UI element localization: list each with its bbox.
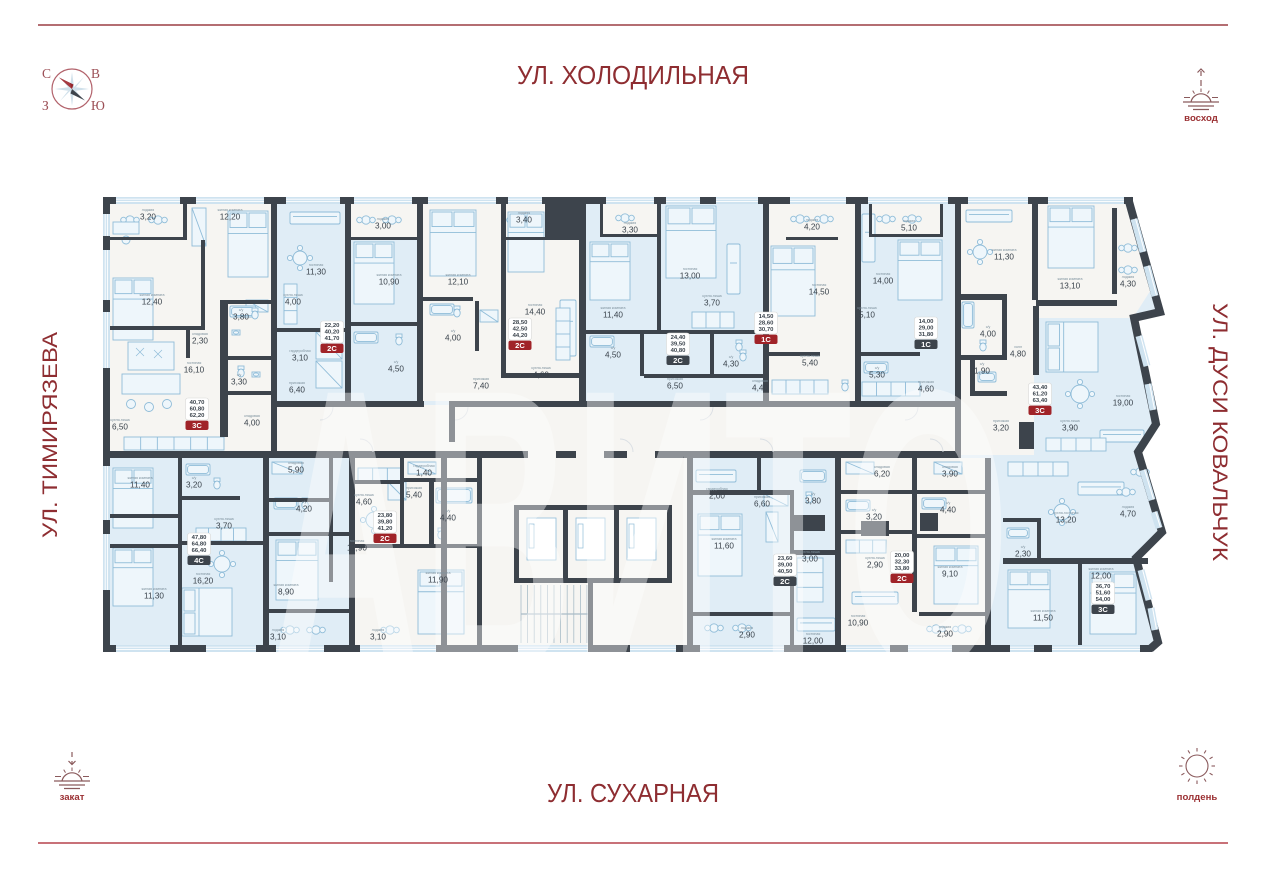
svg-text:3С: 3С (1098, 605, 1108, 614)
svg-text:4,60: 4,60 (356, 498, 372, 507)
svg-text:жилая комната: жилая комната (425, 571, 450, 575)
svg-text:5,10: 5,10 (859, 311, 875, 320)
svg-text:5,10: 5,10 (901, 224, 917, 233)
svg-text:19,00: 19,00 (1113, 399, 1134, 408)
svg-text:4,40: 4,40 (940, 506, 956, 515)
svg-text:13,00: 13,00 (680, 272, 701, 281)
svg-text:прихожая: прихожая (754, 495, 770, 499)
svg-text:11,30: 11,30 (306, 268, 326, 277)
svg-text:прихожая: прихожая (406, 486, 422, 490)
svg-text:1,90: 1,90 (974, 367, 990, 376)
svg-text:кухня-ниша: кухня-ниша (1060, 419, 1079, 423)
svg-text:4,40: 4,40 (752, 384, 768, 393)
svg-text:УЛ. СУХАРНАЯ: УЛ. СУХАРНАЯ (547, 778, 719, 808)
svg-text:4,00: 4,00 (445, 334, 461, 343)
svg-text:3,00: 3,00 (802, 555, 818, 564)
svg-text:16,20: 16,20 (193, 577, 214, 586)
svg-text:полдень: полдень (1177, 792, 1218, 803)
svg-text:9,10: 9,10 (942, 570, 958, 579)
svg-text:восход: восход (1184, 113, 1218, 124)
svg-text:2,00: 2,00 (709, 492, 725, 501)
svg-text:прихожая: прихожая (667, 377, 683, 381)
svg-text:1,40: 1,40 (416, 469, 432, 478)
svg-text:кладовая: кладовая (942, 465, 958, 469)
svg-text:40,50: 40,50 (778, 569, 793, 575)
svg-text:4,60: 4,60 (533, 371, 549, 380)
svg-text:с/у: с/у (729, 355, 734, 359)
svg-text:лоджия: лоджия (377, 217, 390, 221)
svg-text:жилая комната: жилая комната (1088, 567, 1113, 571)
svg-text:4,50: 4,50 (388, 365, 404, 374)
svg-text:3,70: 3,70 (704, 299, 720, 308)
svg-text:3,10: 3,10 (270, 633, 286, 642)
svg-text:кладовая: кладовая (288, 461, 304, 465)
svg-text:4,30: 4,30 (1120, 280, 1136, 289)
svg-text:лоджия: лоджия (272, 628, 285, 632)
svg-text:16,10: 16,10 (184, 366, 205, 375)
svg-text:жилая комната: жилая комната (937, 565, 962, 569)
svg-text:УЛ. ХОЛОДИЛЬНАЯ: УЛ. ХОЛОДИЛЬНАЯ (517, 60, 749, 90)
svg-text:с/у: с/у (237, 373, 242, 377)
svg-text:кухня-ниша: кухня-ниша (857, 306, 876, 310)
svg-text:2С: 2С (780, 577, 790, 586)
svg-text:гостиная: гостиная (528, 303, 543, 307)
svg-text:29,00: 29,00 (919, 325, 934, 331)
svg-text:2,90: 2,90 (867, 561, 883, 570)
svg-text:61,20: 61,20 (1033, 391, 1048, 397)
svg-text:12,00: 12,00 (1091, 572, 1112, 581)
svg-text:2С: 2С (515, 341, 525, 350)
svg-text:прихожая: прихожая (993, 419, 1009, 423)
svg-text:гостиная: гостиная (350, 539, 365, 543)
svg-text:кухня-ниша: кухня-ниша (214, 517, 233, 521)
svg-text:кладовая: кладовая (192, 332, 208, 336)
svg-text:6,20: 6,20 (874, 470, 890, 479)
svg-text:жилая комната: жилая комната (273, 583, 298, 587)
svg-text:жилая комната: жилая комната (1057, 277, 1082, 281)
svg-text:с/у: с/у (986, 325, 991, 329)
svg-text:УЛ. ТИМИРЯЗЕВА: УЛ. ТИМИРЯЗЕВА (39, 332, 62, 538)
svg-text:с/у: с/у (811, 492, 816, 496)
svg-text:закат: закат (60, 792, 85, 803)
svg-text:3,20: 3,20 (993, 424, 1009, 433)
svg-text:12,00: 12,00 (803, 637, 824, 646)
svg-text:1С: 1С (921, 340, 931, 349)
svg-text:3,10: 3,10 (370, 633, 386, 642)
svg-text:3,40: 3,40 (516, 216, 532, 225)
svg-text:кухня-гостиная: кухня-гостиная (1054, 511, 1079, 515)
svg-text:жилая комната: жилая комната (711, 537, 736, 541)
svg-text:лоджия: лоджия (624, 221, 637, 225)
svg-text:11,40: 11,40 (603, 311, 623, 320)
svg-text:23,60: 23,60 (778, 556, 793, 562)
svg-text:лоджия: лоджия (903, 219, 916, 223)
svg-text:66,40: 66,40 (192, 548, 207, 554)
svg-text:4,20: 4,20 (804, 223, 820, 232)
svg-text:лоджия: лоджия (806, 218, 819, 222)
svg-text:13,20: 13,20 (1056, 516, 1077, 525)
svg-text:5,40: 5,40 (802, 359, 818, 368)
svg-text:с/у: с/у (872, 508, 877, 512)
svg-text:жилая комната: жилая комната (217, 208, 242, 212)
svg-text:39,80: 39,80 (378, 519, 393, 525)
svg-text:5,40: 5,40 (406, 491, 422, 500)
svg-text:гостиная: гостиная (187, 361, 202, 365)
svg-text:44,20: 44,20 (513, 333, 528, 339)
svg-text:холл: холл (1014, 345, 1022, 349)
svg-text:2,30: 2,30 (1015, 550, 1031, 559)
svg-text:с/у: с/у (451, 329, 456, 333)
svg-text:24,40: 24,40 (671, 335, 686, 341)
svg-text:жилая комната: жилая комната (1030, 609, 1055, 613)
svg-text:32,30: 32,30 (895, 559, 910, 565)
svg-text:39,50: 39,50 (671, 341, 686, 347)
svg-text:гардеробная: гардеробная (413, 464, 434, 468)
svg-text:12,20: 12,20 (220, 213, 241, 222)
svg-text:43,40: 43,40 (1033, 385, 1048, 391)
svg-text:жилая комната: жилая комната (127, 476, 152, 480)
svg-text:3,20: 3,20 (140, 213, 156, 222)
svg-text:63,40: 63,40 (1033, 398, 1048, 404)
svg-text:гостиная: гостиная (851, 614, 866, 618)
svg-text:12,40: 12,40 (142, 298, 163, 307)
svg-text:жилая комната: жилая комната (600, 306, 625, 310)
svg-text:лоджия: лоджия (741, 626, 754, 630)
svg-text:28,60: 28,60 (759, 320, 774, 326)
svg-text:с/у: с/у (875, 366, 880, 370)
svg-text:14,50: 14,50 (809, 288, 830, 297)
svg-text:4С: 4С (194, 556, 204, 565)
svg-text:3,90: 3,90 (1062, 424, 1078, 433)
svg-text:12,10: 12,10 (448, 278, 469, 287)
svg-text:22,20: 22,20 (325, 323, 340, 329)
svg-text:2,30: 2,30 (192, 337, 208, 346)
svg-text:гостиная: гостиная (806, 632, 821, 636)
svg-text:4,80: 4,80 (1010, 350, 1026, 359)
svg-text:гостиная: гостиная (812, 283, 827, 287)
svg-text:2С: 2С (673, 356, 683, 365)
svg-text:11,30: 11,30 (994, 253, 1014, 262)
svg-text:14,50: 14,50 (759, 314, 774, 320)
svg-text:прихожая: прихожая (918, 380, 934, 384)
svg-text:2С: 2С (327, 344, 337, 353)
svg-text:10,90: 10,90 (848, 619, 869, 628)
svg-text:кладовая: кладовая (752, 379, 768, 383)
svg-text:6,60: 6,60 (754, 500, 770, 509)
svg-text:прихожая: прихожая (289, 381, 305, 385)
svg-text:жилая комната: жилая комната (139, 293, 164, 297)
svg-text:42,50: 42,50 (513, 326, 528, 332)
svg-text:40,70: 40,70 (190, 400, 205, 406)
svg-text:с/у: с/у (611, 346, 616, 350)
svg-text:41,70: 41,70 (325, 336, 340, 342)
svg-text:11,40: 11,40 (130, 481, 150, 490)
svg-text:жилая комната: жилая комната (376, 273, 401, 277)
svg-text:гостиная: гостиная (196, 572, 211, 576)
svg-text:4,00: 4,00 (980, 330, 996, 339)
svg-text:4,20: 4,20 (296, 505, 312, 514)
svg-text:3,90: 3,90 (942, 470, 958, 479)
svg-text:С: С (42, 66, 51, 81)
svg-text:30,70: 30,70 (759, 327, 774, 333)
svg-text:4,60: 4,60 (918, 385, 934, 394)
svg-text:40,80: 40,80 (671, 348, 686, 354)
svg-text:3С: 3С (192, 421, 202, 430)
svg-text:54,00: 54,00 (1096, 597, 1111, 603)
svg-text:3,00: 3,00 (375, 222, 391, 231)
svg-text:кухня-ниша: кухня-ниша (283, 293, 302, 297)
svg-text:28,50: 28,50 (513, 320, 528, 326)
svg-text:З: З (42, 98, 49, 113)
svg-text:прихожая: прихожая (473, 377, 489, 381)
svg-text:51,60: 51,60 (1096, 590, 1111, 596)
svg-text:4,00: 4,00 (244, 419, 260, 428)
svg-text:лоджия: лоджия (142, 208, 155, 212)
svg-text:с/у: с/у (239, 308, 244, 312)
svg-text:10,90: 10,90 (379, 278, 400, 287)
svg-text:47,80: 47,80 (192, 535, 207, 541)
svg-text:гардеробная: гардеробная (289, 349, 310, 353)
svg-text:лоджия: лоджия (1122, 275, 1135, 279)
svg-text:гардеробная: гардеробная (706, 487, 727, 491)
svg-text:3,30: 3,30 (231, 378, 247, 387)
svg-text:с/у: с/у (394, 360, 399, 364)
svg-text:кухня-ниша: кухня-ниша (800, 354, 819, 358)
svg-text:с/у: с/у (302, 500, 307, 504)
svg-text:3,70: 3,70 (216, 522, 232, 531)
svg-text:2С: 2С (380, 534, 390, 543)
svg-text:11,90: 11,90 (347, 544, 367, 553)
svg-text:лоджия: лоджия (518, 211, 531, 215)
svg-text:11,50: 11,50 (1033, 614, 1053, 623)
svg-text:14,00: 14,00 (919, 319, 934, 325)
svg-text:жилая комната: жилая комната (991, 248, 1016, 252)
svg-text:20,00: 20,00 (895, 553, 910, 559)
svg-text:36,70: 36,70 (1096, 584, 1111, 590)
svg-text:4,30: 4,30 (723, 360, 739, 369)
svg-text:11,60: 11,60 (714, 542, 734, 551)
svg-text:6,50: 6,50 (112, 423, 128, 432)
svg-text:с/у: с/у (980, 362, 985, 366)
svg-text:лоджия: лоджия (939, 625, 952, 629)
svg-text:41,20: 41,20 (378, 526, 393, 532)
svg-text:6,40: 6,40 (289, 386, 305, 395)
svg-text:3,80: 3,80 (805, 497, 821, 506)
svg-text:3С: 3С (1035, 406, 1045, 415)
svg-text:гостиная: гостиная (683, 267, 698, 271)
svg-text:4,70: 4,70 (1120, 510, 1136, 519)
svg-text:с/у: с/у (1021, 545, 1026, 549)
svg-text:УЛ. ДУСИ КОВАЛЬЧУК: УЛ. ДУСИ КОВАЛЬЧУК (1208, 303, 1231, 562)
svg-text:40,20: 40,20 (325, 329, 340, 335)
svg-text:2,90: 2,90 (937, 630, 953, 639)
svg-text:кухня-ниша: кухня-ниша (110, 418, 129, 422)
svg-text:14,40: 14,40 (525, 308, 546, 317)
svg-text:3,20: 3,20 (866, 513, 882, 522)
svg-text:2С: 2С (897, 574, 907, 583)
svg-text:с/у: с/у (446, 509, 451, 513)
svg-text:кухня-ниша: кухня-ниша (865, 556, 884, 560)
svg-text:6,50: 6,50 (667, 382, 683, 391)
svg-text:с/у: с/у (192, 476, 197, 480)
svg-text:гостиная: гостиная (309, 263, 324, 267)
svg-text:3,80: 3,80 (233, 313, 249, 322)
svg-text:1С: 1С (761, 335, 771, 344)
svg-text:кухня-ниша: кухня-ниша (531, 366, 550, 370)
svg-text:лоджия: лоджия (1122, 505, 1135, 509)
svg-text:3,30: 3,30 (622, 226, 638, 235)
svg-text:с/у: с/у (946, 501, 951, 505)
svg-text:3,10: 3,10 (292, 354, 308, 363)
svg-text:5,30: 5,30 (869, 371, 885, 380)
svg-text:Ю: Ю (91, 98, 105, 113)
svg-text:11,30: 11,30 (144, 592, 164, 601)
svg-text:4,40: 4,40 (440, 514, 456, 523)
svg-text:кухня-ниша: кухня-ниша (702, 294, 721, 298)
svg-text:кладовая: кладовая (874, 465, 890, 469)
svg-text:лоджия: лоджия (372, 628, 385, 632)
svg-text:14,00: 14,00 (873, 277, 894, 286)
svg-text:8,90: 8,90 (278, 588, 294, 597)
svg-text:гостиная: гостиная (1116, 394, 1131, 398)
svg-text:11,90: 11,90 (428, 576, 448, 585)
svg-text:4,00: 4,00 (285, 298, 301, 307)
svg-text:13,10: 13,10 (1060, 282, 1081, 291)
svg-text:кухня-ниша: кухня-ниша (354, 493, 373, 497)
svg-text:гостиная: гостиная (876, 272, 891, 276)
svg-text:кухня-ниша: кухня-ниша (800, 550, 819, 554)
svg-text:33,80: 33,80 (895, 566, 910, 572)
svg-text:64,80: 64,80 (192, 541, 207, 547)
svg-text:4,50: 4,50 (605, 351, 621, 360)
svg-text:31,80: 31,80 (919, 332, 934, 338)
svg-text:жилая комната: жилая комната (141, 587, 166, 591)
svg-text:3,20: 3,20 (186, 481, 202, 490)
svg-text:62,20: 62,20 (190, 413, 205, 419)
svg-text:В: В (91, 66, 100, 81)
svg-text:7,40: 7,40 (473, 382, 489, 391)
svg-text:кладовая: кладовая (244, 414, 260, 418)
svg-text:60,80: 60,80 (190, 406, 205, 412)
svg-text:39,00: 39,00 (778, 562, 793, 568)
svg-text:23,80: 23,80 (378, 513, 393, 519)
svg-text:2,90: 2,90 (739, 631, 755, 640)
svg-text:5,90: 5,90 (288, 466, 304, 475)
svg-text:жилая комната: жилая комната (445, 273, 470, 277)
